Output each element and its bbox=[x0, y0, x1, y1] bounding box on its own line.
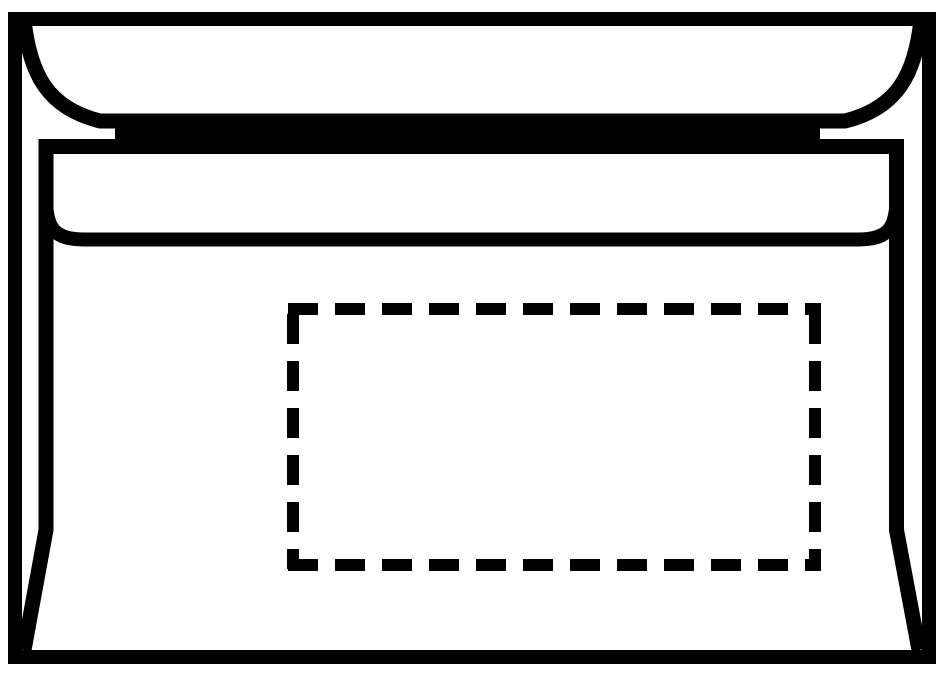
address-window-outline bbox=[288, 309, 821, 569]
envelope-drawing bbox=[0, 0, 945, 673]
flap-seam-line bbox=[46, 198, 897, 240]
flap-edge-line bbox=[24, 20, 921, 121]
envelope-illustration bbox=[0, 0, 945, 673]
body-outline-line bbox=[24, 147, 919, 651]
